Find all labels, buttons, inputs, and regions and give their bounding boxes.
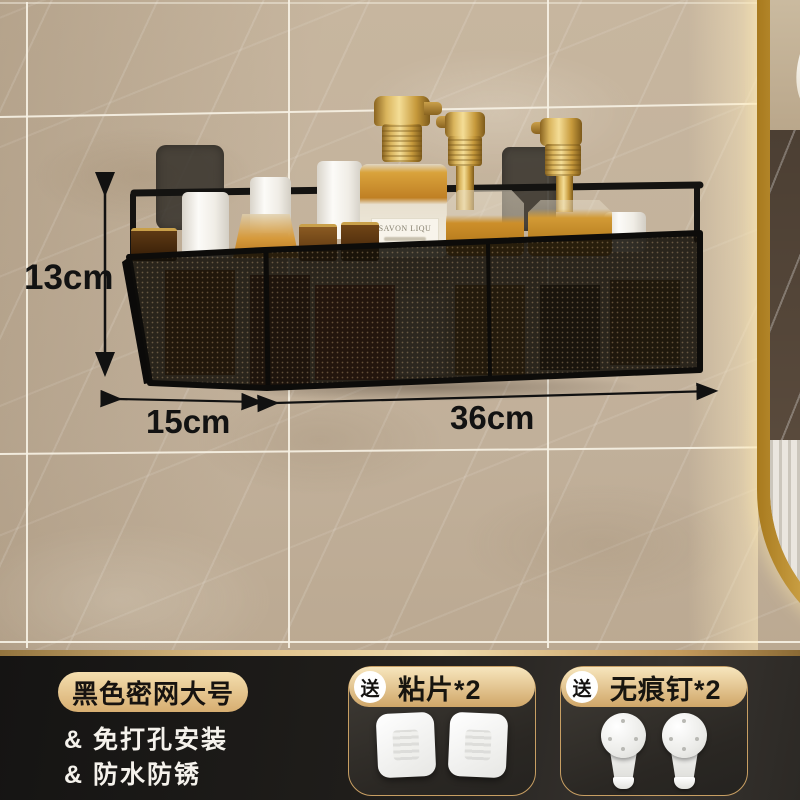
gift-items <box>349 713 535 777</box>
gift-box-nails: 送 无痕钉*2 <box>560 666 748 796</box>
feature-text: & 防水防锈 <box>64 755 201 791</box>
height-dimension-label: 13cm <box>24 258 104 298</box>
nail-dot <box>695 737 699 741</box>
adhesive-pad-icon <box>448 712 509 778</box>
feature-text: & 免打孔安装 <box>64 720 228 756</box>
adhesive-pad-core <box>392 729 419 760</box>
traceless-nail-icon <box>600 713 647 791</box>
gift-name: 粘片*2 <box>398 668 482 707</box>
gift-items <box>561 713 747 791</box>
nail-hook-tip <box>613 777 634 789</box>
nail-dot <box>669 737 673 741</box>
gift-header: 送 无痕钉*2 <box>561 667 747 707</box>
nail-dot <box>634 737 638 741</box>
gift-header: 送 粘片*2 <box>349 667 535 707</box>
nail-dot <box>682 747 686 751</box>
nail-dot <box>682 719 686 723</box>
nail-dot <box>621 719 625 723</box>
info-banner: 黑色密网大号 & 免打孔安装 & 防水防锈 送 粘片*2 送 无痕钉* <box>0 656 800 800</box>
product-image: SAVON LIQU <box>0 0 800 800</box>
width-dimension-label: 36cm <box>450 399 534 437</box>
traceless-nail-icon <box>661 713 708 791</box>
gift-tag-circle: 送 <box>354 671 386 703</box>
nail-dot <box>621 747 625 751</box>
variant-badge-text: 黑色密网大号 <box>72 674 234 711</box>
adhesive-pad-icon <box>376 712 437 778</box>
nail-hook-tip <box>674 777 695 789</box>
depth-dimension-label: 15cm <box>146 403 230 441</box>
nail-dot <box>608 737 612 741</box>
gift-box-adhesive: 送 粘片*2 <box>348 666 536 796</box>
gift-tag-circle: 送 <box>566 671 598 703</box>
variant-badge: 黑色密网大号 <box>58 672 248 712</box>
gift-name: 无痕钉*2 <box>610 668 722 707</box>
adhesive-pad-core <box>464 729 491 760</box>
